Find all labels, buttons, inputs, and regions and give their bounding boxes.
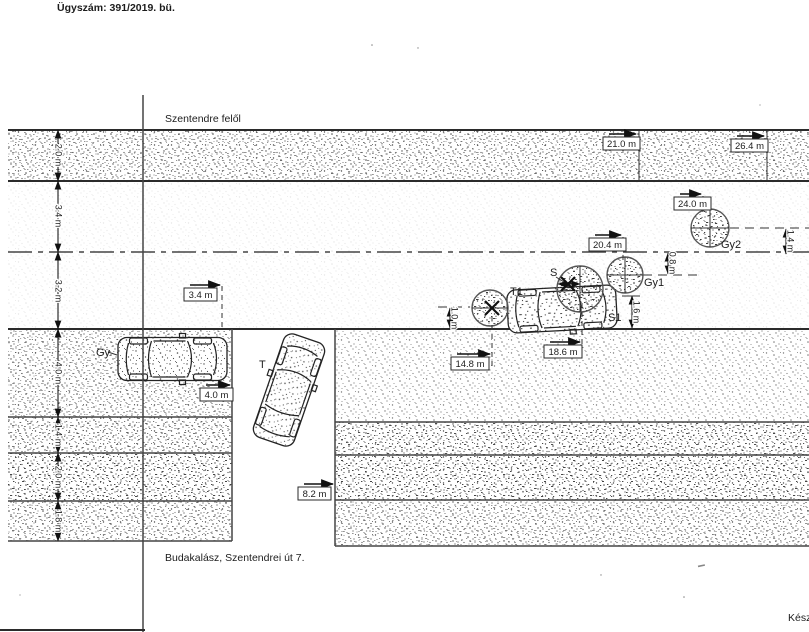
chain-dim-1-8: 1.8 m	[54, 510, 64, 533]
footer-label: Kész	[788, 612, 809, 624]
tree-gy1-label: Gy1	[644, 277, 664, 289]
dim-label-3-4: 3.4 m	[189, 290, 213, 301]
vehicle-gy-label: Gy	[96, 347, 111, 359]
offset-dim-1-4: 1.4 m	[786, 229, 796, 254]
chain-dim-4-0: 4.0 m	[54, 362, 64, 385]
chain-dim-2-0a: 2.0 m	[54, 144, 64, 167]
accident-sketch-page: 2.0 m 3.4 m 3.2 m 4.0 m 1.4 m 2.0 m 1.8 …	[0, 0, 809, 632]
chain-dim-3-2: 3.2 m	[54, 280, 64, 303]
offset-label-1-4: 1.4 m	[786, 230, 796, 253]
dim-label-24-0: 24.0 m	[678, 199, 707, 210]
vehicle-gy	[118, 334, 227, 385]
dim-label-18-6: 18.6 m	[548, 347, 577, 358]
offset-dim-1-0: 1.0 m	[450, 307, 460, 330]
accident-sketch-svg: 2.0 m 3.4 m 3.2 m 4.0 m 1.4 m 2.0 m 1.8 …	[0, 0, 809, 632]
tree-gy1	[607, 257, 643, 293]
location-label: Budakalász, Szentendrei út 7.	[165, 552, 305, 564]
chain-dim-2-0b: 2.0 m	[54, 466, 64, 489]
point-s1-label: S1	[608, 312, 621, 324]
offset-label-1-6: 1.6 m	[632, 301, 642, 324]
vehicle-t	[247, 330, 331, 450]
point-s-label: S	[550, 267, 557, 279]
dim-label-8-2: 8.2 m	[303, 489, 327, 500]
case-number: Ügyszám: 391/2019. bü.	[57, 1, 175, 14]
offset-dim-0-8: 0.8 m	[668, 252, 678, 275]
offset-label-0-8: 0.8 m	[668, 252, 678, 275]
dim-box-8-2: 8.2 m	[298, 484, 333, 500]
dim-label-26-4: 26.4 m	[735, 141, 764, 152]
dim-label-4-0: 4.0 m	[205, 390, 229, 401]
chain-dim-3-4: 3.4 m	[54, 205, 64, 228]
dim-box-24-0: 24.0 m	[674, 194, 711, 212]
direction-label: Szentendre felől	[165, 113, 241, 125]
dim-label-20-4: 20.4 m	[593, 240, 622, 251]
tree-gy2-label: Gy2	[721, 239, 741, 251]
dim-label-14-8: 14.8 m	[455, 359, 484, 370]
vehicle-t-label: T	[259, 359, 266, 371]
offset-label-1-0: 1.0 m	[450, 307, 460, 330]
dim-label-21-0: 21.0 m	[607, 139, 636, 150]
bush-at-14-8m	[472, 290, 508, 326]
chain-dim-1-4: 1.4 m	[54, 424, 64, 447]
vehicle-t1-label: T1	[510, 286, 523, 298]
